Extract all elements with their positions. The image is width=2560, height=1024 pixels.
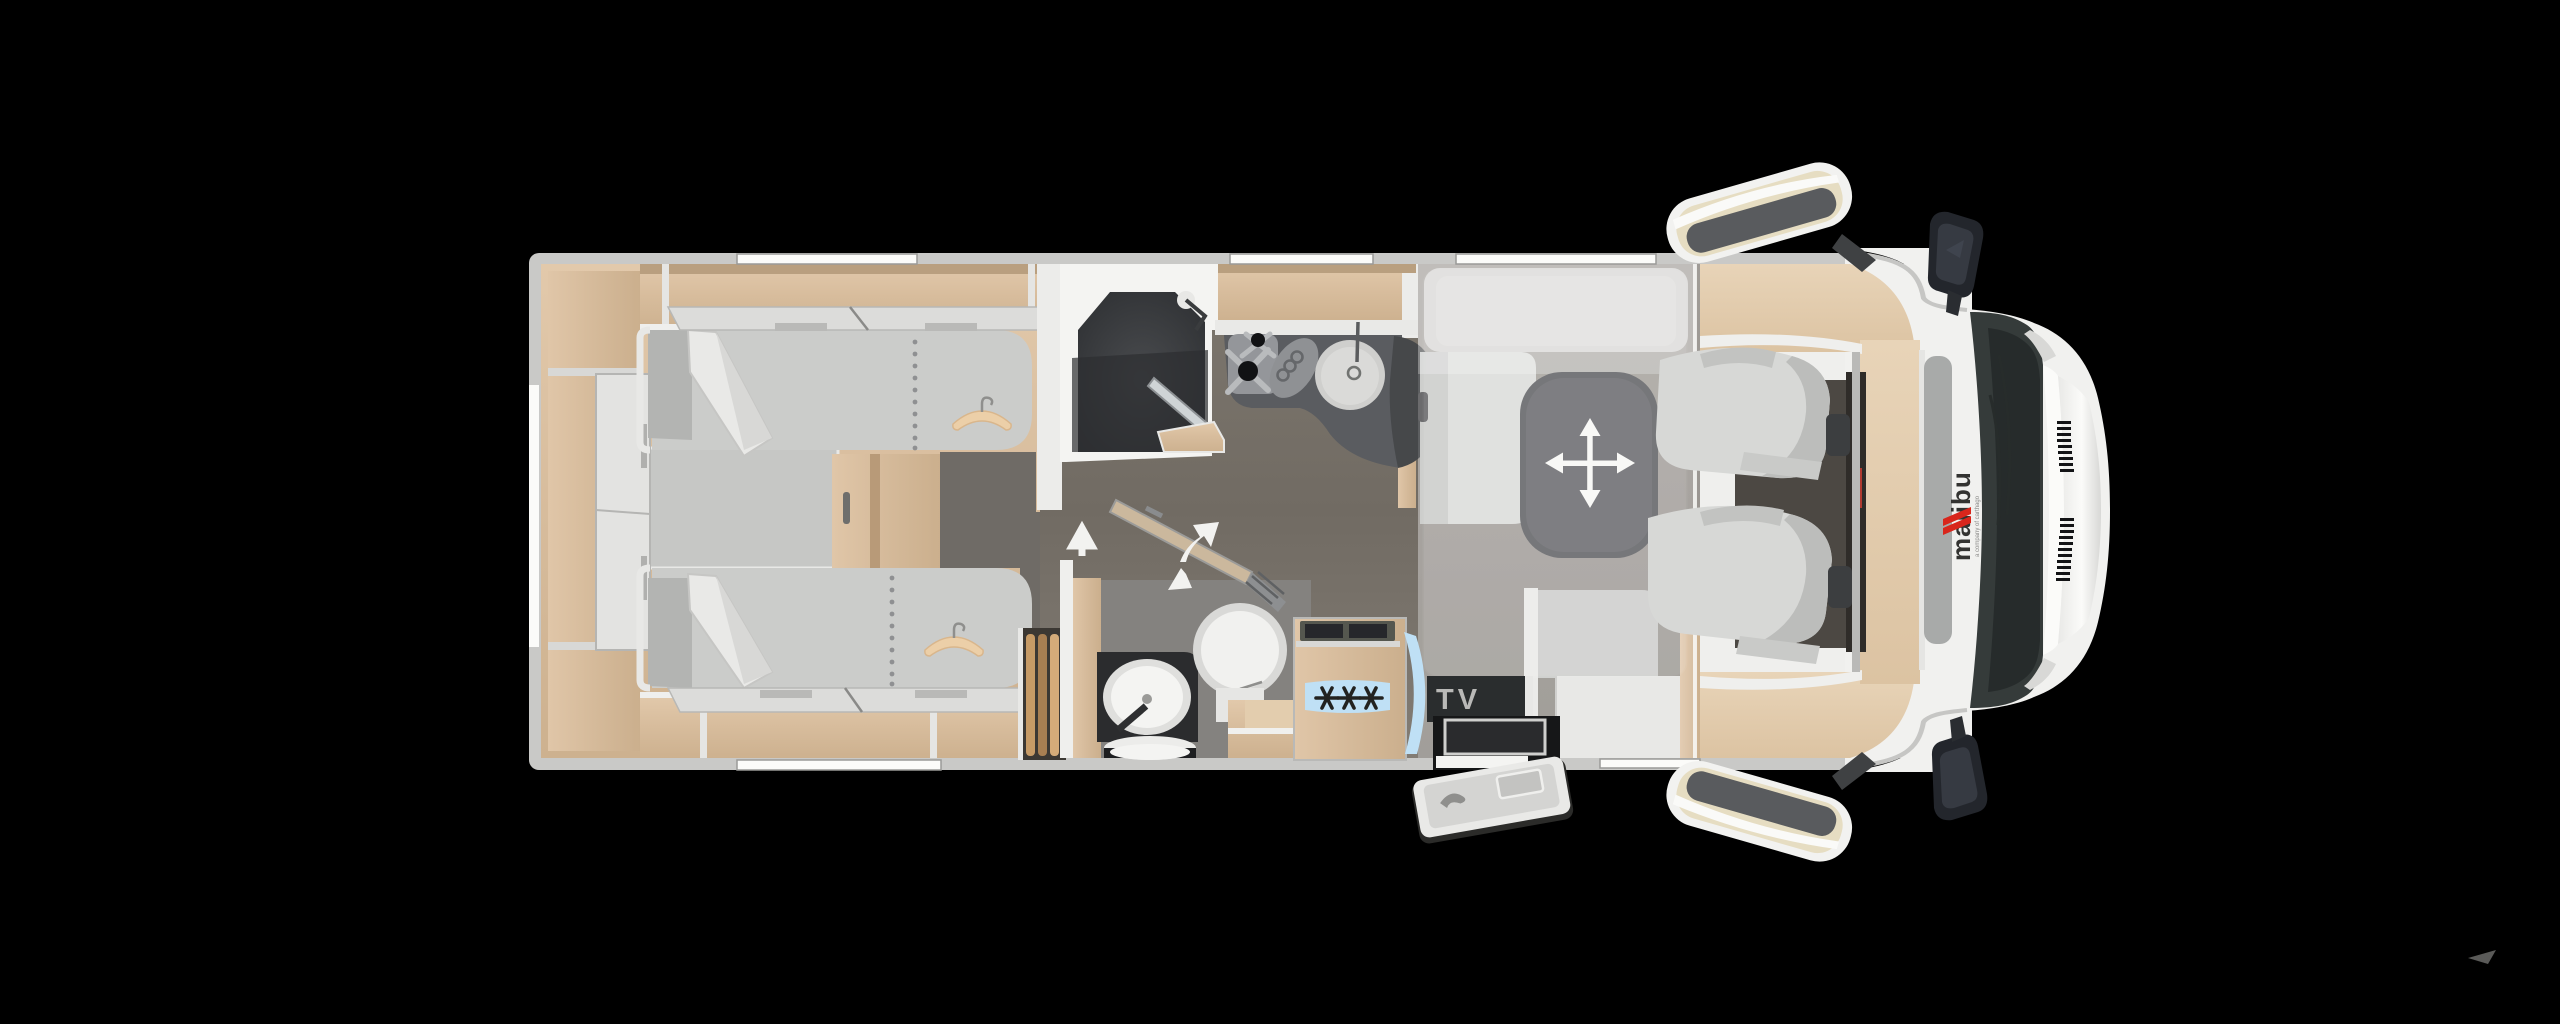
svg-text:TV: TV bbox=[1436, 684, 1481, 716]
svg-text:a company of carthago: a company of carthago bbox=[1975, 495, 1981, 557]
